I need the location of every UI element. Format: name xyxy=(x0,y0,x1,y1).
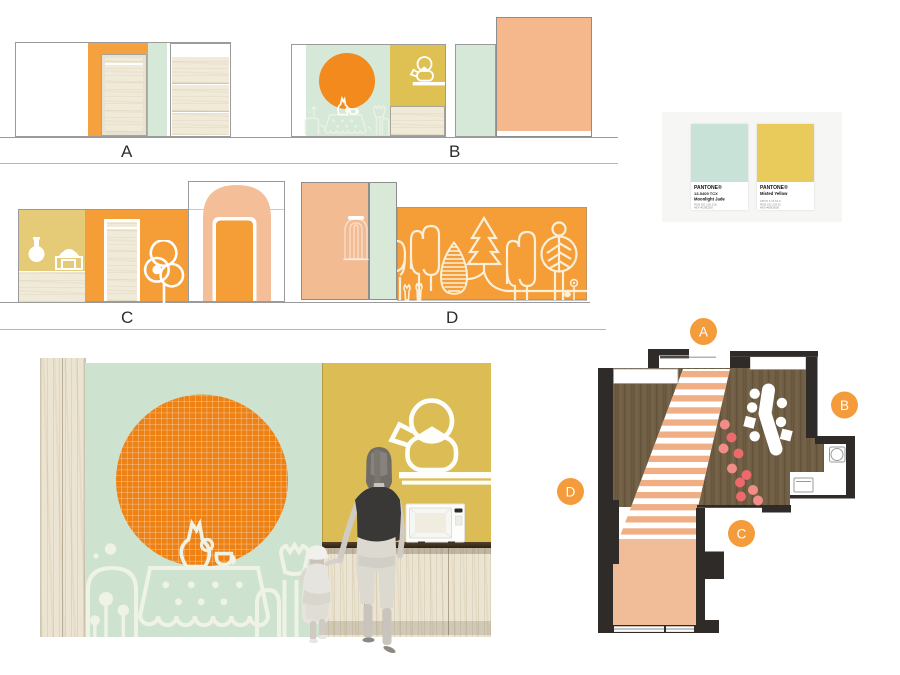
svg-text:Misted Yellow: Misted Yellow xyxy=(760,191,788,196)
svg-text:Moonlight Jade: Moonlight Jade xyxy=(694,197,725,202)
svg-text:C: C xyxy=(737,526,747,541)
svg-text:PANTONE®: PANTONE® xyxy=(694,184,722,191)
svg-text:PANTONE®: PANTONE® xyxy=(760,184,788,191)
svg-text:HEX #C9E2D8: HEX #C9E2D8 xyxy=(694,206,713,210)
svg-text:B: B xyxy=(840,398,849,413)
svg-text:HEX #E8CB5B: HEX #E8CB5B xyxy=(760,206,779,210)
svg-text:A: A xyxy=(699,324,708,339)
svg-text:D: D xyxy=(566,484,576,499)
svg-text:13-5409 TCX: 13-5409 TCX xyxy=(694,191,718,196)
